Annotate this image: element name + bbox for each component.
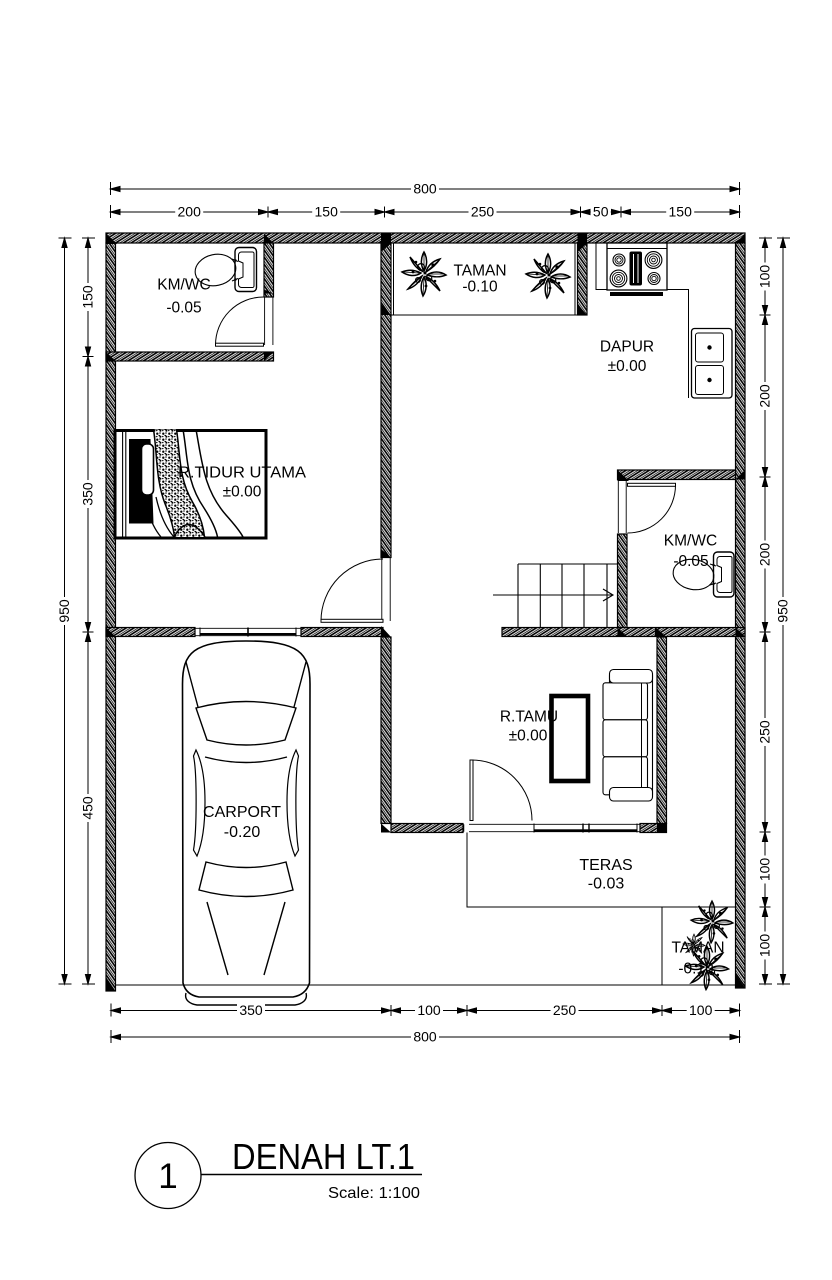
svg-text:100: 100 — [757, 265, 773, 289]
svg-text:-0.05: -0.05 — [166, 300, 201, 317]
svg-text:R.TAMU: R.TAMU — [500, 709, 558, 726]
svg-text:-0.05: -0.05 — [673, 553, 708, 570]
svg-text:200: 200 — [757, 543, 773, 567]
svg-text:±0.00: ±0.00 — [223, 484, 262, 501]
svg-text:TAMAN: TAMAN — [453, 263, 506, 280]
svg-text:100: 100 — [757, 858, 773, 882]
svg-text:100: 100 — [757, 934, 773, 958]
svg-text:KM/WC: KM/WC — [157, 277, 210, 294]
svg-text:150: 150 — [669, 204, 693, 220]
svg-text:TAMAN: TAMAN — [671, 940, 724, 957]
svg-text:150: 150 — [315, 204, 339, 220]
svg-text:150: 150 — [80, 285, 96, 309]
svg-text:±0.00: ±0.00 — [608, 358, 647, 375]
svg-text:450: 450 — [80, 796, 96, 820]
svg-text:100: 100 — [689, 1002, 713, 1018]
svg-text:250: 250 — [471, 204, 495, 220]
svg-text:CARPORT: CARPORT — [203, 804, 281, 821]
svg-text:±0.00: ±0.00 — [509, 728, 548, 745]
svg-text:350: 350 — [80, 482, 96, 506]
svg-text:250: 250 — [757, 720, 773, 744]
svg-text:-0.10: -0.10 — [462, 279, 498, 296]
svg-text:100: 100 — [417, 1002, 441, 1018]
svg-text:DAPUR: DAPUR — [600, 339, 654, 356]
svg-text:950: 950 — [775, 599, 791, 623]
svg-text:950: 950 — [56, 599, 72, 623]
svg-text:TERAS: TERAS — [579, 857, 632, 874]
svg-text:KM/WC: KM/WC — [664, 533, 717, 550]
svg-text:-0.20: -0.20 — [224, 824, 261, 841]
svg-text:200: 200 — [178, 204, 202, 220]
svg-text:-0.10: -0.10 — [678, 961, 714, 978]
svg-text:R.TIDUR UTAMA: R.TIDUR UTAMA — [178, 465, 307, 482]
svg-text:-0.03: -0.03 — [588, 876, 625, 893]
svg-text:800: 800 — [413, 181, 437, 197]
svg-text:Scale: 1:100: Scale: 1:100 — [328, 1185, 420, 1202]
svg-text:350: 350 — [239, 1002, 263, 1018]
svg-text:DENAH LT.1: DENAH LT.1 — [232, 1136, 415, 1177]
svg-text:800: 800 — [413, 1029, 437, 1045]
svg-text:50: 50 — [593, 204, 609, 220]
svg-text:250: 250 — [553, 1002, 577, 1018]
svg-text:1: 1 — [158, 1157, 177, 1196]
svg-text:200: 200 — [757, 384, 773, 408]
